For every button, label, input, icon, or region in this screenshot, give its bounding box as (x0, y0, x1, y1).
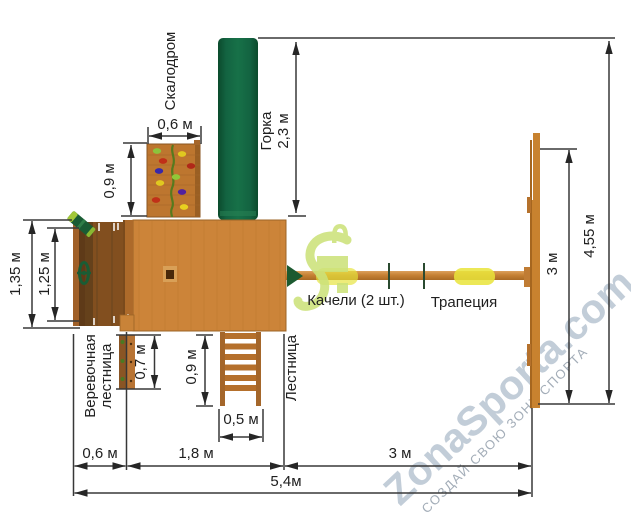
svg-text:Скалодром: Скалодром (162, 32, 179, 111)
svg-text:0,9 м: 0,9 м (101, 163, 118, 198)
svg-text:0,7 м: 0,7 м (132, 344, 149, 379)
svg-text:0,6 м: 0,6 м (157, 116, 192, 133)
svg-text:3 м: 3 м (544, 253, 561, 276)
svg-text:1,25 м: 1,25 м (36, 252, 53, 296)
svg-text:Горка: Горка (258, 111, 275, 151)
svg-text:лестница: лестница (98, 343, 115, 409)
svg-text:Качели (2 шт.): Качели (2 шт.) (307, 292, 405, 309)
svg-text:0,6 м: 0,6 м (82, 445, 117, 462)
svg-text:4,55 м: 4,55 м (581, 214, 598, 258)
svg-text:ZonaSporta.com: ZonaSporta.com (375, 259, 631, 513)
svg-text:Лестница: Лестница (283, 334, 300, 401)
svg-text:0,5 м: 0,5 м (223, 411, 258, 428)
svg-text:Веревочная: Веревочная (82, 334, 99, 417)
svg-text:1,8 м: 1,8 м (178, 445, 213, 462)
svg-text:3 м: 3 м (389, 445, 412, 462)
svg-text:0,9 м: 0,9 м (183, 349, 200, 384)
svg-text:1,35 м: 1,35 м (7, 252, 24, 296)
svg-text:2,3 м: 2,3 м (275, 113, 292, 148)
svg-text:5,4м: 5,4м (270, 473, 301, 490)
svg-text:Трапеция: Трапеция (431, 294, 498, 311)
